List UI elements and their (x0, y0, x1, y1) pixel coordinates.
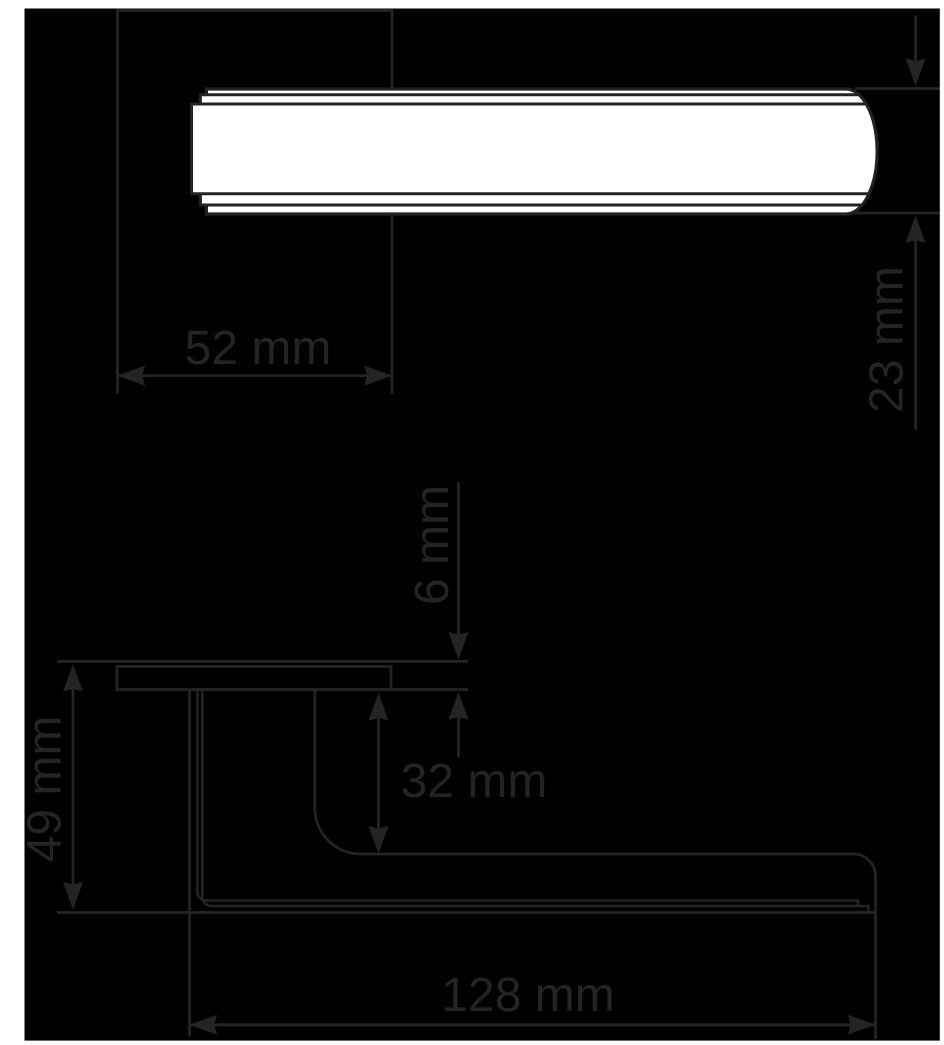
svg-text:32 mm: 32 mm (401, 755, 548, 808)
svg-text:23 mm: 23 mm (861, 266, 914, 413)
svg-text:52 mm: 52 mm (185, 322, 332, 375)
svg-text:49 mm: 49 mm (19, 716, 72, 863)
svg-text:128 mm: 128 mm (441, 969, 614, 1022)
svg-text:6 mm: 6 mm (406, 485, 459, 605)
